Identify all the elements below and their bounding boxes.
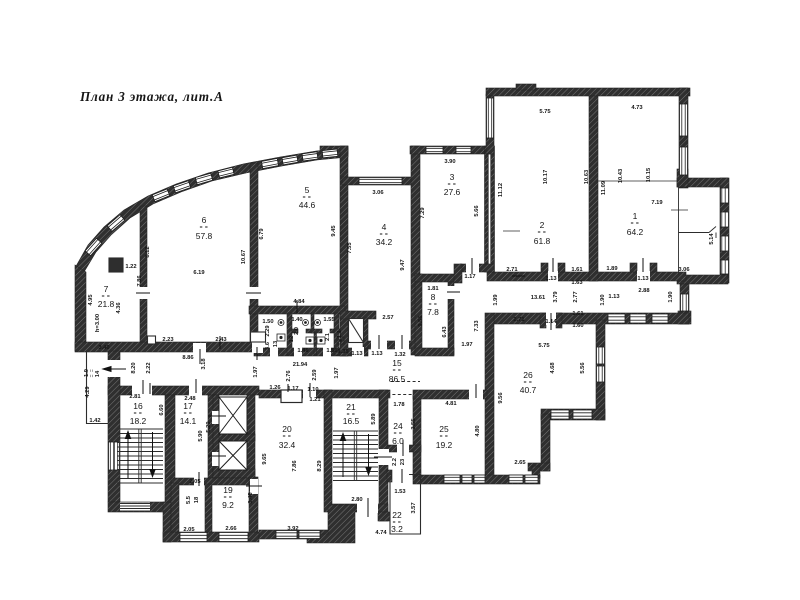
svg-text:2.23: 2.23 <box>162 337 174 343</box>
svg-text:3.6: 3.6 <box>265 341 271 350</box>
svg-text:34.2: 34.2 <box>376 237 393 247</box>
svg-text:64.2: 64.2 <box>627 227 644 237</box>
svg-text:План 3 этажа, лит.А: План 3 этажа, лит.А <box>79 89 224 104</box>
svg-text:3.79: 3.79 <box>553 291 559 303</box>
svg-text:6.43: 6.43 <box>442 326 448 338</box>
svg-text:1.89: 1.89 <box>606 266 618 272</box>
svg-text:3: 3 <box>450 172 455 182</box>
svg-text:10.67: 10.67 <box>241 250 247 265</box>
svg-text:9.65: 9.65 <box>262 453 268 465</box>
svg-text:23: 23 <box>400 458 406 465</box>
svg-text:21.94: 21.94 <box>293 362 308 368</box>
svg-text:7.8: 7.8 <box>427 307 439 317</box>
svg-text:1.26: 1.26 <box>269 385 281 391</box>
svg-text:18.2: 18.2 <box>130 416 147 426</box>
svg-text:= =: = = <box>90 369 96 378</box>
svg-text:44.6: 44.6 <box>299 200 316 210</box>
svg-text:1.48: 1.48 <box>297 348 309 354</box>
svg-text:6.60: 6.60 <box>159 404 165 415</box>
svg-text:8.29: 8.29 <box>317 460 323 472</box>
svg-text:57.8: 57.8 <box>196 231 213 241</box>
svg-text:1.17: 1.17 <box>464 274 475 280</box>
svg-text:3.18: 3.18 <box>201 358 207 370</box>
svg-text:3.55: 3.55 <box>411 418 417 430</box>
svg-text:2.81: 2.81 <box>129 394 141 400</box>
svg-text:5: 5 <box>305 185 310 195</box>
svg-text:1.42: 1.42 <box>89 418 100 424</box>
svg-text:2.65: 2.65 <box>514 460 526 466</box>
svg-text:1.63: 1.63 <box>571 280 583 286</box>
svg-text:6.19: 6.19 <box>193 270 205 276</box>
svg-text:2.59: 2.59 <box>312 369 318 381</box>
svg-text:15: 15 <box>392 358 402 368</box>
svg-text:2.43: 2.43 <box>215 337 227 343</box>
svg-text:2.71: 2.71 <box>506 267 518 273</box>
svg-text:32.4: 32.4 <box>279 440 296 450</box>
svg-text:7.55: 7.55 <box>347 242 353 254</box>
svg-text:1.99: 1.99 <box>493 294 499 306</box>
svg-text:10.15: 10.15 <box>646 167 652 182</box>
svg-text:3.45: 3.45 <box>248 492 254 504</box>
svg-text:4.95: 4.95 <box>88 294 94 306</box>
svg-text:16: 16 <box>133 401 143 411</box>
svg-text:19.2: 19.2 <box>436 440 453 450</box>
svg-text:21: 21 <box>346 402 356 412</box>
svg-text:5.75: 5.75 <box>538 343 550 349</box>
svg-text:2.88: 2.88 <box>638 288 650 294</box>
svg-text:5.66: 5.66 <box>474 205 480 217</box>
svg-text:4.68: 4.68 <box>550 362 556 374</box>
svg-text:24: 24 <box>393 421 403 431</box>
svg-text:9.2: 9.2 <box>222 500 234 510</box>
svg-text:1.13: 1.13 <box>371 351 383 357</box>
svg-text:27.6: 27.6 <box>444 187 461 197</box>
svg-text:26: 26 <box>523 370 533 380</box>
svg-text:1.13: 1.13 <box>351 351 363 357</box>
svg-text:7.33: 7.33 <box>474 320 480 332</box>
svg-text:2.2: 2.2 <box>392 458 398 466</box>
svg-text:9.47: 9.47 <box>400 259 406 270</box>
svg-text:13.61: 13.61 <box>531 295 546 301</box>
svg-text:7: 7 <box>104 284 109 294</box>
svg-text:1.97: 1.97 <box>253 366 259 377</box>
svg-text:1.61: 1.61 <box>572 311 584 317</box>
svg-text:1.40: 1.40 <box>291 317 302 323</box>
svg-text:1.97: 1.97 <box>334 367 340 378</box>
svg-text:1.55: 1.55 <box>323 317 335 323</box>
svg-text:22: 22 <box>392 510 402 520</box>
svg-text:2.05: 2.05 <box>189 479 201 485</box>
svg-text:4.74: 4.74 <box>375 530 387 536</box>
svg-text:2: 2 <box>540 220 545 230</box>
svg-text:5.56: 5.56 <box>580 362 586 374</box>
svg-text:20: 20 <box>282 424 292 434</box>
svg-text:1.22: 1.22 <box>125 264 136 270</box>
svg-text:2.76: 2.76 <box>286 370 292 382</box>
svg-text:1.35: 1.35 <box>337 349 349 355</box>
svg-text:4.84: 4.84 <box>293 299 305 305</box>
svg-text:1.1: 1.1 <box>337 329 343 338</box>
svg-text:18: 18 <box>194 496 200 503</box>
svg-text:7.86: 7.86 <box>292 460 298 472</box>
svg-text:1.13: 1.13 <box>608 294 620 300</box>
svg-text:19: 19 <box>223 485 233 495</box>
svg-text:8: 8 <box>431 292 436 302</box>
svg-text:1.13: 1.13 <box>545 276 557 282</box>
svg-text:h=3.00: h=3.00 <box>95 314 101 332</box>
svg-text:2.77: 2.77 <box>573 291 579 302</box>
svg-text:12: 12 <box>289 336 295 342</box>
svg-text:5.14: 5.14 <box>709 233 715 245</box>
svg-text:2.29: 2.29 <box>265 325 271 337</box>
svg-text:9.56: 9.56 <box>498 392 504 404</box>
svg-text:2.80: 2.80 <box>351 497 362 503</box>
svg-text:8.86: 8.86 <box>182 355 194 361</box>
svg-text:1.90: 1.90 <box>668 291 674 302</box>
svg-text:5.90: 5.90 <box>198 430 204 441</box>
svg-text:2.05: 2.05 <box>183 527 195 533</box>
svg-text:1.10: 1.10 <box>307 387 318 393</box>
svg-text:6.79: 6.79 <box>259 228 265 240</box>
svg-text:5.75: 5.75 <box>539 109 551 115</box>
svg-text:5.29: 5.29 <box>206 421 212 433</box>
svg-text:13: 13 <box>273 340 279 347</box>
svg-text:2.66: 2.66 <box>225 526 237 532</box>
svg-text:61.8: 61.8 <box>534 236 551 246</box>
svg-text:40.7: 40.7 <box>520 385 537 395</box>
svg-text:7.86: 7.86 <box>137 275 143 287</box>
svg-text:1.21: 1.21 <box>309 397 321 403</box>
svg-text:3.90: 3.90 <box>444 159 455 165</box>
svg-text:3.57: 3.57 <box>411 502 417 513</box>
svg-text:17: 17 <box>183 401 193 411</box>
svg-text:1.53: 1.53 <box>394 489 406 495</box>
svg-text:9.45: 9.45 <box>331 225 337 237</box>
svg-text:1.13: 1.13 <box>637 276 649 282</box>
svg-text:14: 14 <box>95 370 101 377</box>
svg-text:1.14: 1.14 <box>545 319 557 325</box>
svg-text:2.0: 2.0 <box>294 327 300 335</box>
svg-text:16.5: 16.5 <box>343 416 360 426</box>
svg-text:10.63: 10.63 <box>584 169 590 184</box>
svg-text:1.61: 1.61 <box>571 267 583 273</box>
svg-text:86.5: 86.5 <box>389 374 406 384</box>
svg-text:11.09: 11.09 <box>601 180 607 195</box>
svg-text:8.20: 8.20 <box>131 362 137 373</box>
svg-text:3.92: 3.92 <box>287 526 298 532</box>
svg-text:4.29: 4.29 <box>85 386 91 398</box>
svg-text:5.89: 5.89 <box>371 413 377 425</box>
svg-text:7.29: 7.29 <box>420 207 426 219</box>
svg-text:4.36: 4.36 <box>116 302 122 314</box>
svg-text:1.50: 1.50 <box>262 319 273 325</box>
svg-text:25: 25 <box>439 424 449 434</box>
svg-text:6.0: 6.0 <box>392 436 404 446</box>
svg-text:1.32: 1.32 <box>394 352 405 358</box>
svg-text:10.43: 10.43 <box>618 168 624 183</box>
svg-text:3.40: 3.40 <box>98 345 109 351</box>
svg-text:3.06: 3.06 <box>678 267 690 273</box>
svg-text:2.57: 2.57 <box>382 315 393 321</box>
svg-text:1.17: 1.17 <box>287 386 298 392</box>
svg-text:4: 4 <box>382 222 387 232</box>
svg-text:1.60: 1.60 <box>572 323 583 329</box>
svg-text:5.5: 5.5 <box>186 495 192 504</box>
svg-text:2.48: 2.48 <box>184 396 196 402</box>
svg-text:6: 6 <box>202 215 207 225</box>
svg-text:1.78: 1.78 <box>393 402 405 408</box>
svg-text:1.97: 1.97 <box>461 342 472 348</box>
svg-text:1: 1 <box>633 211 638 221</box>
svg-text:2.71: 2.71 <box>513 317 525 323</box>
svg-text:8.12: 8.12 <box>145 246 151 257</box>
svg-text:2.1: 2.1 <box>325 332 331 341</box>
svg-text:9.56: 9.56 <box>418 315 424 327</box>
svg-text:1.90: 1.90 <box>600 294 606 305</box>
svg-text:21.8: 21.8 <box>98 299 115 309</box>
svg-text:7.19: 7.19 <box>651 200 663 206</box>
svg-text:2.22: 2.22 <box>146 362 152 373</box>
svg-text:3.2: 3.2 <box>391 524 403 534</box>
svg-text:11.12: 11.12 <box>498 183 504 197</box>
svg-text:10.17: 10.17 <box>543 170 549 185</box>
svg-text:4.81: 4.81 <box>445 401 457 407</box>
svg-text:4.73: 4.73 <box>631 105 643 111</box>
svg-text:14.1: 14.1 <box>180 416 197 426</box>
svg-text:3.06: 3.06 <box>372 190 384 196</box>
svg-text:4.80: 4.80 <box>475 425 481 436</box>
